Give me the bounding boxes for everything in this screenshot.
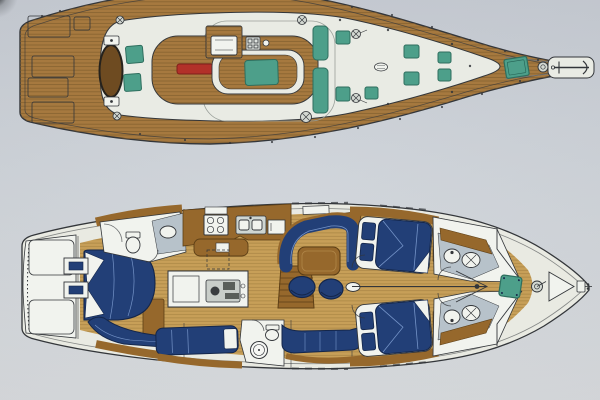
cockpit-cushion bbox=[123, 73, 141, 91]
deck-plan-view bbox=[20, 0, 594, 144]
toilet bbox=[266, 325, 280, 341]
fore-hatch bbox=[499, 275, 523, 299]
yacht-plans-drawing bbox=[0, 0, 600, 400]
windlass bbox=[538, 62, 548, 72]
ottoman bbox=[289, 277, 315, 298]
dorade-vent bbox=[375, 63, 388, 71]
deck-hatch-teal bbox=[438, 69, 451, 81]
galley-sink bbox=[236, 216, 266, 234]
fore-hatch bbox=[504, 56, 530, 78]
cockpit-table bbox=[177, 64, 213, 74]
deck-hatch-teal bbox=[438, 52, 451, 63]
winch bbox=[113, 112, 121, 120]
companionway bbox=[206, 26, 242, 58]
helm-oval bbox=[100, 45, 123, 97]
saloon bbox=[280, 206, 365, 361]
cockpit-cushion bbox=[125, 45, 143, 63]
mast-step bbox=[475, 284, 480, 289]
galley-fridge bbox=[268, 220, 285, 234]
compass bbox=[263, 40, 269, 46]
anchor-platform bbox=[548, 57, 594, 78]
sideboard bbox=[303, 206, 329, 215]
ottoman bbox=[319, 279, 343, 299]
pillow bbox=[224, 329, 238, 349]
winch bbox=[116, 16, 124, 24]
deck-hatch-teal bbox=[336, 31, 350, 44]
brochure-photo bbox=[0, 0, 600, 400]
deck-hatch-teal bbox=[404, 45, 419, 58]
winch bbox=[298, 16, 307, 25]
sink bbox=[160, 226, 176, 238]
guest-cabin-port bbox=[350, 211, 442, 274]
pilot-berth bbox=[156, 326, 239, 356]
side-seat-cushion bbox=[313, 68, 328, 113]
engine bbox=[206, 280, 245, 302]
side-seat-cushion bbox=[313, 26, 328, 60]
shower bbox=[251, 342, 268, 359]
guest-cabin-starboard bbox=[350, 299, 442, 362]
sunpad-cushion bbox=[245, 59, 279, 85]
deck-hatch-teal bbox=[365, 87, 378, 99]
toilet bbox=[126, 232, 140, 253]
winch bbox=[301, 112, 312, 123]
mid-head bbox=[240, 320, 284, 366]
interior-plan-view bbox=[22, 203, 592, 369]
galley-stove bbox=[204, 215, 228, 235]
companionway-hatch bbox=[211, 36, 237, 55]
bow-fitting bbox=[577, 281, 592, 292]
deck-hatch-teal bbox=[336, 87, 350, 101]
deck-hatch-teal bbox=[404, 72, 419, 85]
galley-island bbox=[194, 239, 248, 256]
